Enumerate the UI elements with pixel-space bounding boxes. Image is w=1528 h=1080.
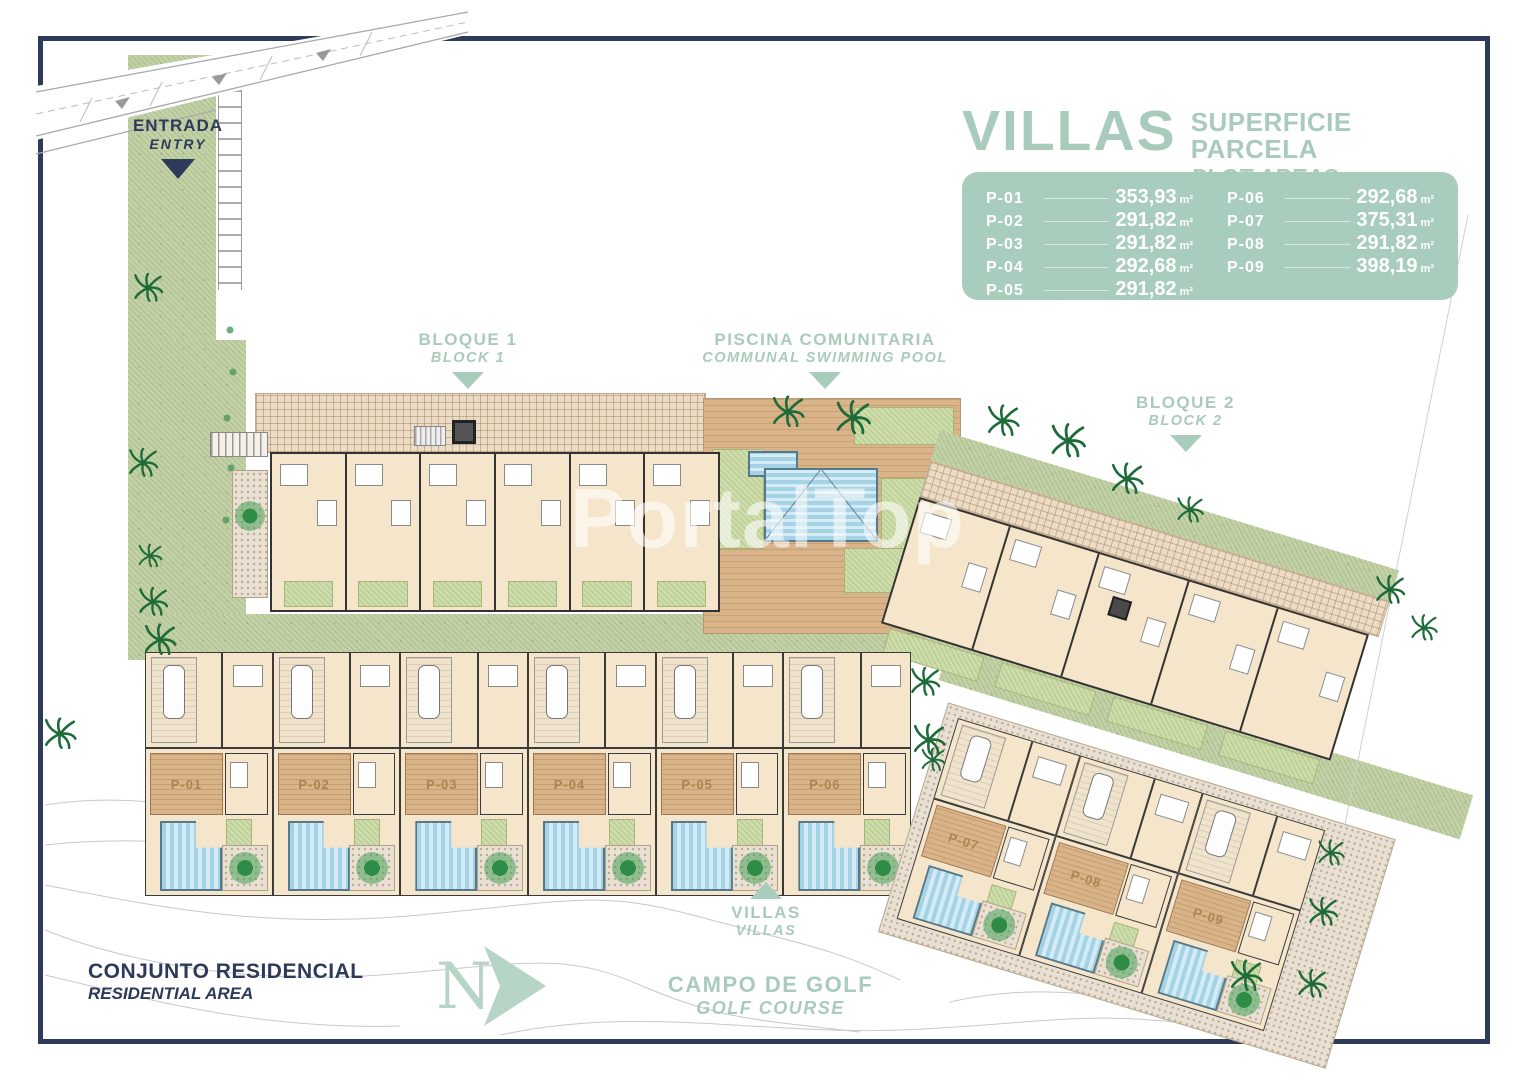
watermark: PortalTop [570,470,965,567]
plot-leader-line [1044,198,1109,199]
plot-area-value: 291,82 [1115,279,1176,299]
plot-id: P-06 [1227,191,1279,207]
communal-pool-label-en: COMMUNAL SWIMMING POOL [695,350,955,366]
plot-areas-column-1: P-01353,93m² P-02291,82m² P-03291,82m² P… [986,187,1193,288]
plot-leader-line [1044,267,1109,268]
plot-row: P-05291,82m² [986,279,1193,298]
plot-row: P-07375,31m² [1227,210,1434,229]
communal-pool-label: PISCINA COMUNITARIA COMMUNAL SWIMMING PO… [695,330,955,389]
plot-area-unit: m² [1421,264,1434,275]
plot-area-value: 375,31 [1356,210,1417,230]
residential-label-en: RESIDENTIAL AREA [88,984,428,1004]
plot-area-unit: m² [1180,241,1193,252]
plot-row: P-06292,68m² [1227,187,1434,206]
plot-row: P-02291,82m² [986,210,1193,229]
north-arrow-icon [484,942,554,1032]
villas-label: VILLAS VILLAS [700,882,832,939]
block2-label-en: BLOCK 2 [1108,413,1263,429]
plot-leader-line [1044,290,1109,291]
plot-row: P-04292,68m² [986,256,1193,275]
entrance-label-en: ENTRY [118,136,238,152]
plot-id: P-01 [986,191,1038,207]
site-plan-page: P-01 P-02 P-03 P-04 [0,0,1528,1080]
plot-id: P-03 [986,237,1038,253]
legend-subtitle: SUPERFICIE PARCELA [1191,109,1472,164]
plot-area-value: 291,82 [1115,233,1176,253]
plot-id: P-07 [1227,214,1279,230]
plot-areas-panel: P-01353,93m² P-02291,82m² P-03291,82m² P… [962,172,1458,300]
entrance-label-es: ENTRADA [118,116,238,136]
plot-area-unit: m² [1180,218,1193,229]
plot-leader-line [1285,244,1350,245]
block1-label-es: BLOQUE 1 [398,330,538,350]
plot-area-unit: m² [1180,287,1193,298]
plot-area-value: 353,93 [1115,187,1176,207]
legend-title: VILLAS [962,104,1177,158]
plot-area-unit: m² [1421,195,1434,206]
golf-label-en: GOLF COURSE [648,998,893,1019]
plot-id: P-05 [986,283,1038,299]
residential-area-label: CONJUNTO RESIDENCIAL RESIDENTIAL AREA [88,960,428,1004]
plot-area-value: 398,19 [1356,256,1417,276]
plot-area-unit: m² [1421,218,1434,229]
plot-leader-line [1285,221,1350,222]
plot-row: P-09398,19m² [1227,256,1434,275]
plot-area-unit: m² [1180,195,1193,206]
block2-label: BLOQUE 2 BLOCK 2 [1108,393,1263,452]
plot-area-value: 291,82 [1356,233,1417,253]
block1-label-en: BLOCK 1 [398,350,538,366]
residential-label-es: CONJUNTO RESIDENCIAL [88,960,428,984]
plot-leader-line [1044,221,1109,222]
plot-area-unit: m² [1421,241,1434,252]
villas-label-en: VILLAS [700,923,832,939]
north-arrow: N [436,942,554,1032]
entrance-label: ENTRADA ENTRY [118,116,238,179]
plot-row: P-01353,93m² [986,187,1193,206]
communal-pool-pointer-icon [809,372,841,389]
plot-id: P-09 [1227,260,1279,276]
block2-pointer-icon [1170,435,1202,452]
villas-pointer-icon [750,882,782,899]
communal-pool-label-es: PISCINA COMUNITARIA [695,330,955,350]
plot-id: P-02 [986,214,1038,230]
plot-id: P-04 [986,260,1038,276]
plot-areas-column-2: P-06292,68m² P-07375,31m² P-08291,82m² P… [1227,187,1434,288]
block1-pointer-icon [452,372,484,389]
plot-leader-line [1285,267,1350,268]
plot-area-value: 292,68 [1356,187,1417,207]
entrance-pointer-icon [161,159,195,179]
block1-label: BLOQUE 1 BLOCK 1 [398,330,538,389]
plot-row: P-08291,82m² [1227,233,1434,252]
plot-area-value: 292,68 [1115,256,1176,276]
plot-leader-line [1044,244,1109,245]
block2-label-es: BLOQUE 2 [1108,393,1263,413]
golf-label-es: CAMPO DE GOLF [648,972,893,998]
villas-label-es: VILLAS [700,903,832,923]
golf-label: CAMPO DE GOLF GOLF COURSE [648,972,893,1019]
plot-row: P-03291,82m² [986,233,1193,252]
plot-id: P-08 [1227,237,1279,253]
plot-area-value: 291,82 [1115,210,1176,230]
plot-leader-line [1285,198,1350,199]
plot-area-unit: m² [1180,264,1193,275]
